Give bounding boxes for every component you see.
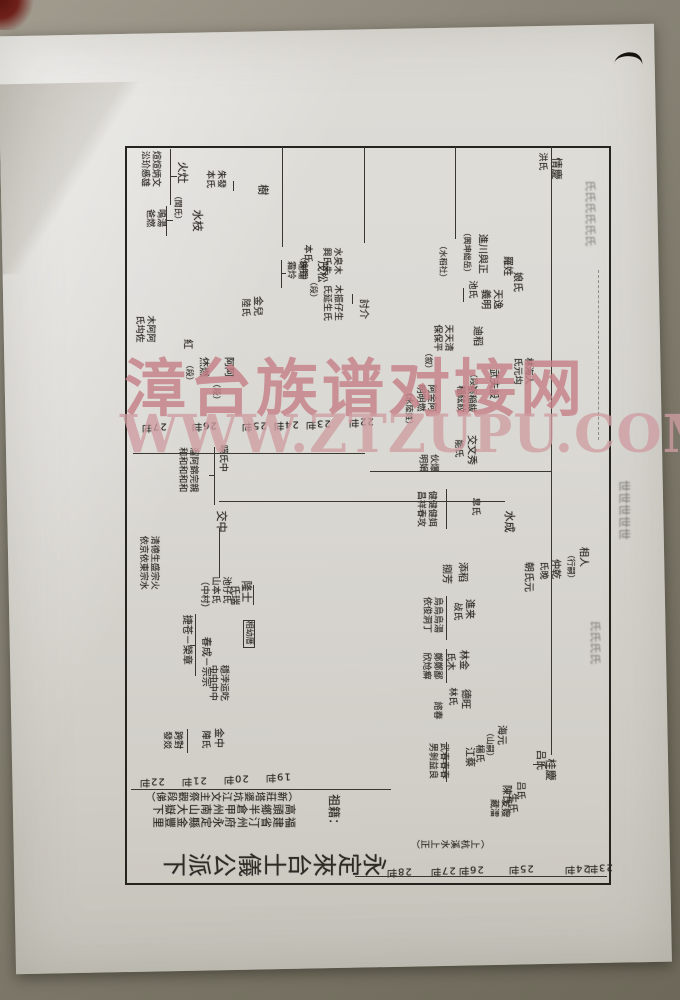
chart-node-text: 進来 — [462, 599, 475, 621]
connector-line — [282, 147, 283, 247]
connector-line — [446, 742, 447, 782]
connector-line — [131, 789, 391, 790]
ghost-bleedthrough-text: 氏氏氏氏 — [588, 620, 602, 667]
chart-node-text: 鄭鄭鄙 欣炝癣 — [420, 652, 443, 682]
watermark-url: WWW.ZTZUPU.COM — [120, 404, 680, 465]
chart-node-text: 水枝 — [190, 210, 204, 234]
photo-corner-shadow — [0, 0, 34, 30]
chart-node-text: 池仔氏 山本氏 （中村） — [197, 577, 231, 616]
chart-node-text: 相人 — [576, 547, 589, 569]
chart-node-text: 木振仔生 氏延生氏 — [320, 285, 343, 324]
connector-line — [219, 501, 505, 502]
boxed-branch-label: 相幼厝 — [243, 620, 255, 648]
chart-node-text: 樹 — [256, 184, 270, 197]
chart-node-text: 瑞瑞 霜炩 — [284, 261, 307, 281]
chart-node-text: 水成 — [502, 511, 516, 535]
connector-line — [463, 288, 464, 302]
ghost-bleedthrough-text: 世世世世世 — [616, 480, 631, 543]
generation-label: 25世 — [497, 861, 533, 874]
connector-line — [446, 649, 447, 683]
chart-node-text: （水稻社） — [437, 242, 447, 285]
chart-node-text: （興坤絀岳） — [461, 229, 471, 280]
generation-label: 27世 — [419, 863, 455, 876]
chart-node-text: 金兒 — [250, 296, 263, 318]
generation-label: 21世 — [170, 773, 206, 786]
connector-line — [167, 220, 173, 221]
generation-label: 19世 — [254, 769, 290, 782]
origin-text-line: （上杭溪水上正） — [408, 835, 490, 847]
connector-line — [187, 729, 188, 753]
connector-line — [171, 176, 177, 177]
chart-node-text: 桂慶 — [543, 759, 557, 783]
chart-node-text: 池氏 — [466, 280, 477, 300]
connector-line — [364, 147, 365, 243]
connector-line — [370, 471, 551, 472]
connector-line — [446, 596, 447, 640]
origin-label: 祖籍： — [326, 794, 341, 833]
chart-node-text: 朝氏元 — [521, 562, 534, 595]
chart-node-text: 敁氏 — [451, 602, 462, 622]
chart-node-text: （行嗣） — [565, 551, 575, 586]
chart-node-text: 仲乾 — [548, 559, 561, 581]
chart-node-text: 交中 — [214, 511, 228, 535]
chart-node-text: 討介 — [356, 299, 369, 321]
chart-node-text: 林金 — [456, 650, 469, 672]
chart-node-text: 氏晚 — [537, 561, 548, 581]
generation-label: 22世 — [128, 774, 164, 787]
chart-node-text: 健健健㛅 昌祥春攻 — [414, 491, 437, 530]
chart-node-text: 友嫂 藏㵢 — [487, 799, 510, 819]
connector-line — [455, 147, 456, 239]
connector-line — [253, 585, 254, 605]
chart-node-text: 娘氏 — [510, 272, 523, 294]
connector-line — [233, 181, 234, 191]
chart-node-text: 火灶 — [175, 162, 189, 186]
generation-label: 24世 — [553, 861, 589, 874]
origin-text-line: 福建省汀州府永定縣金豐里 — [150, 813, 297, 827]
chart-node-text: 林氏 — [446, 687, 457, 707]
chart-title: 永定來台士儀公派下 — [150, 844, 387, 875]
connector-line — [170, 149, 171, 205]
connector-line — [281, 260, 282, 288]
chart-node-text: 捷苍－榮章 — [179, 615, 192, 668]
chart-node-text: 鳴湯 爸燃 — [143, 209, 166, 229]
chart-node-text: 天逸 義明 — [478, 289, 503, 311]
ghost-bleedthrough-text: 氏氏氏氏氏氏 — [583, 180, 597, 249]
chart-node-text: 清德生盛宗火 依京依東宗水 — [136, 536, 159, 593]
chart-node-text: 楊氏 — [473, 744, 484, 764]
chart-node-text: （段） — [308, 278, 318, 304]
connector-line — [166, 206, 167, 236]
chart-node-text: 金中 — [211, 728, 224, 750]
chart-node-text: 諮春 — [431, 701, 442, 721]
connector-line — [219, 528, 220, 578]
connector-line — [352, 294, 353, 304]
generation-label: 20世 — [212, 771, 248, 784]
chart-node-text: （山嗣） — [484, 729, 494, 764]
chart-node-text: 穩浡运吃 中中中中 — [206, 665, 229, 704]
chart-node-text: 水㚖木 興氏朱 — [320, 247, 343, 277]
chart-node-text: 海元 — [494, 725, 507, 747]
chart-node-text: 跨對 發㸚 — [160, 731, 183, 751]
connector-line — [282, 273, 286, 274]
chart-node-text: 進川與正 — [475, 234, 488, 277]
chart-node-text: 陣氏 — [199, 730, 210, 750]
chart-node-text: 朱發 本氏 — [203, 170, 226, 190]
chart-node-text: 氏瑞 — [227, 585, 240, 607]
connector-line — [190, 645, 196, 646]
chart-node-text: 洪氏 — [536, 152, 547, 172]
chart-node-text: 添稻 — [455, 562, 468, 584]
connector-line — [533, 764, 544, 765]
chart-node-text: 陸氏 — [239, 298, 250, 318]
chart-node-text: 德旺 — [458, 689, 471, 711]
chart-node-text: 煊煊炳文 㳂玠㥻雄 — [138, 151, 161, 190]
chart-node-text: 隆士 — [239, 581, 253, 605]
chart-node-text: 烏烏烏湯 依俊洞丁 — [420, 597, 443, 636]
connector-line — [209, 475, 215, 476]
chart-node-text: 捌芳 — [439, 564, 452, 586]
chart-node-text: 江蔡 — [462, 747, 475, 769]
connector-line — [355, 876, 607, 877]
chart-node-text: （閩氏） — [172, 192, 182, 227]
connector-line — [446, 489, 447, 529]
